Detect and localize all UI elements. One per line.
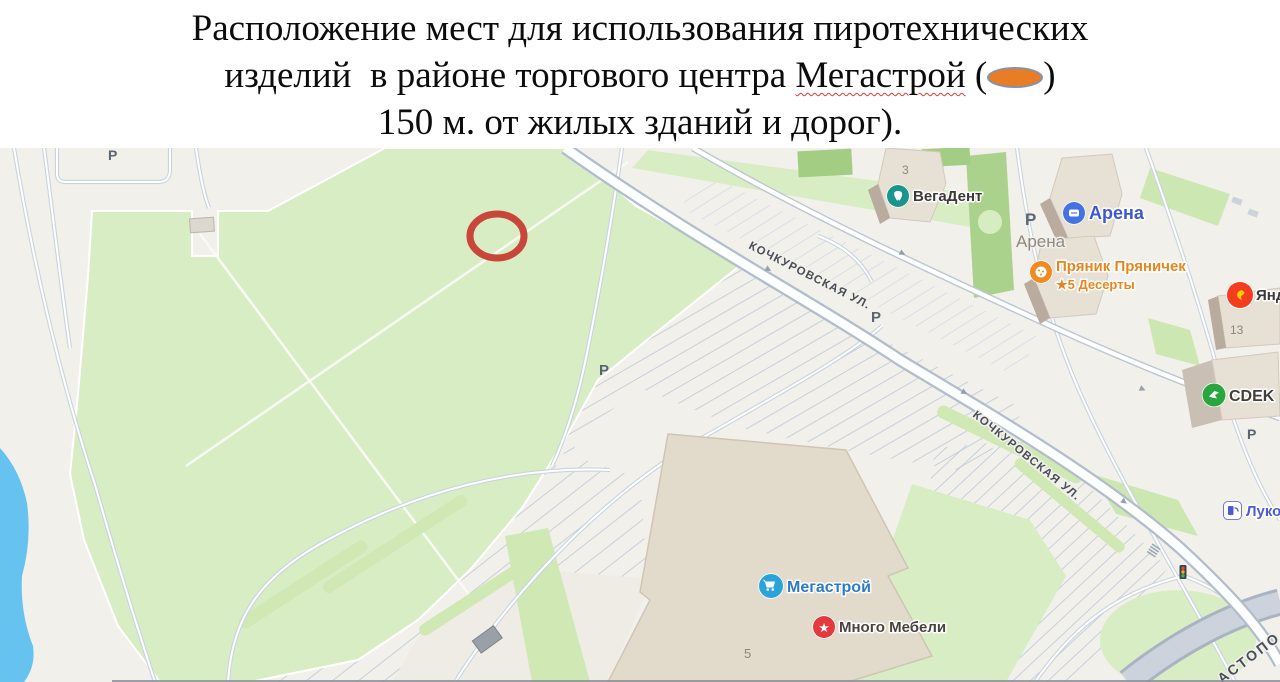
arena-label: Арена <box>1089 203 1145 223</box>
slide: Расположение мест для использования пиро… <box>0 0 1280 682</box>
map-canvas[interactable]: КОЧКУРОВСКАЯ УЛ. КОЧКУРОВСКАЯ УЛ. АСТОПО… <box>0 148 1280 682</box>
bldg-number-5: 5 <box>744 646 751 661</box>
pryanik-sublabel: ★5 Десерты <box>1056 277 1135 292</box>
arena-area-label: Арена <box>1016 232 1066 251</box>
boulevard-lawn <box>978 210 1002 234</box>
parking-p: Р <box>1247 426 1256 442</box>
traffic-light-icon <box>1180 565 1187 579</box>
mnogo-mebeli-label: Много Мебели <box>839 619 946 636</box>
megastroy-label: Мегастрой <box>787 579 871 596</box>
title-brand-megastroy: Мегастрой <box>795 55 965 96</box>
cdek-label: CDEK <box>1229 388 1275 405</box>
parking-p: Р <box>1025 210 1036 229</box>
title-line-3: 150 м. от жилых зданий и дорог). <box>0 99 1280 146</box>
svg-text:★: ★ <box>819 623 829 635</box>
pryanik-label: Пряник Пряничек <box>1056 258 1186 275</box>
parking-p: Р <box>599 362 609 379</box>
title-line2-text: изделий в районе торгового центра <box>224 55 795 96</box>
poi-vegadent[interactable]: ВегаДент <box>887 185 982 207</box>
poi-lukoil[interactable]: Лукойл <box>1224 502 1280 520</box>
poi-arena[interactable]: Арена <box>1063 202 1145 224</box>
slide-title: Расположение мест для использования пиро… <box>0 0 1280 148</box>
yandex-label: Яндекс <box>1256 287 1280 304</box>
sport-field <box>797 149 852 178</box>
parking-p: Р <box>871 309 881 326</box>
map-container[interactable]: КОЧКУРОВСКАЯ УЛ. КОЧКУРОВСКАЯ УЛ. АСТОПО… <box>0 148 1280 682</box>
title-line-2: изделий в районе торгового центра Мегаст… <box>0 52 1280 99</box>
lukoil-label: Лукойл <box>1246 503 1280 520</box>
small-building-field <box>190 217 215 233</box>
orange-oval-legend-marker <box>987 67 1043 88</box>
bldg-number-3: 3 <box>902 163 909 177</box>
parking-p: Р <box>108 148 117 163</box>
title-line-1: Расположение мест для использования пиро… <box>0 5 1280 52</box>
vegadent-label: ВегаДент <box>913 188 982 205</box>
bldg-number-13: 13 <box>1230 323 1244 337</box>
